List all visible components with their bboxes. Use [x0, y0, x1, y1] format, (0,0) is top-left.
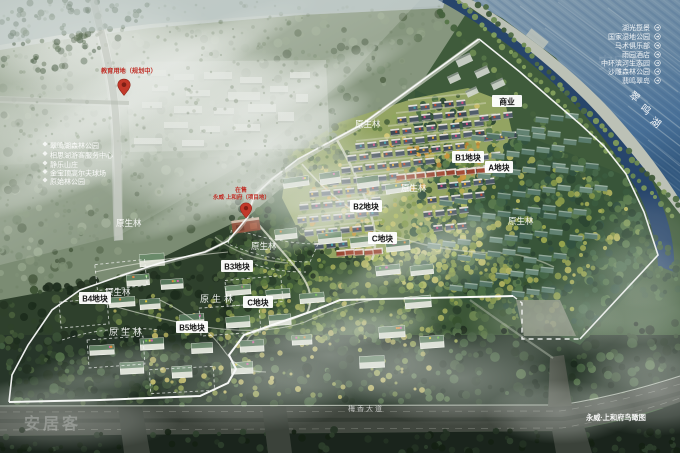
- svg-text:B5地块: B5地块: [179, 323, 205, 333]
- svg-text:教育用地（规划中）: 教育用地（规划中）: [100, 67, 157, 75]
- svg-text:原生林: 原生林: [508, 216, 534, 226]
- svg-text:翡鸣翠岛: 翡鸣翠岛: [622, 76, 650, 85]
- svg-text:雨园酒店: 雨园酒店: [622, 50, 650, 59]
- svg-text:国家湿地公园: 国家湿地公园: [608, 32, 650, 41]
- svg-text:原始林公园: 原始林公园: [50, 177, 85, 186]
- svg-text:湖光揽景: 湖光揽景: [622, 23, 650, 32]
- svg-text:原生林: 原生林: [355, 119, 381, 129]
- svg-text:沙雕森林公园: 沙雕森林公园: [608, 67, 650, 76]
- svg-text:C地块: C地块: [372, 234, 393, 244]
- svg-text:原生林: 原生林: [401, 183, 427, 193]
- svg-text:金宝顶高尔夫球场: 金宝顶高尔夫球场: [50, 169, 106, 178]
- svg-text:永威·上和府（项目地）: 永威·上和府（项目地）: [212, 193, 270, 201]
- svg-text:永威·上和府鸟瞰图: 永威·上和府鸟瞰图: [585, 413, 646, 422]
- svg-text:C地块: C地块: [247, 298, 268, 308]
- svg-text:B2地块: B2地块: [353, 202, 379, 212]
- svg-text:翠鸣湖森林公园: 翠鸣湖森林公园: [50, 141, 99, 150]
- svg-text:中环滨河生态园: 中环滨河生态园: [601, 59, 650, 68]
- svg-text:商业: 商业: [499, 97, 515, 107]
- svg-text:静乐山庄: 静乐山庄: [50, 160, 78, 169]
- svg-text:梅香大道: 梅香大道: [348, 404, 384, 413]
- svg-text:A地块: A地块: [488, 163, 509, 173]
- svg-text:B3地块: B3地块: [224, 262, 250, 272]
- svg-text:原生林: 原生林: [251, 241, 277, 251]
- svg-text:相思湖游客服务中心: 相思湖游客服务中心: [50, 151, 113, 160]
- svg-text:原生林: 原生林: [109, 326, 145, 337]
- svg-text:原生林: 原生林: [200, 293, 236, 304]
- svg-text:B1地块: B1地块: [455, 153, 481, 163]
- svg-text:在售: 在售: [235, 186, 247, 194]
- svg-text:原生林: 原生林: [105, 287, 131, 297]
- svg-text:马术俱乐部: 马术俱乐部: [615, 41, 650, 50]
- svg-text:安居客: 安居客: [24, 414, 81, 433]
- svg-text:原生林: 原生林: [116, 218, 142, 228]
